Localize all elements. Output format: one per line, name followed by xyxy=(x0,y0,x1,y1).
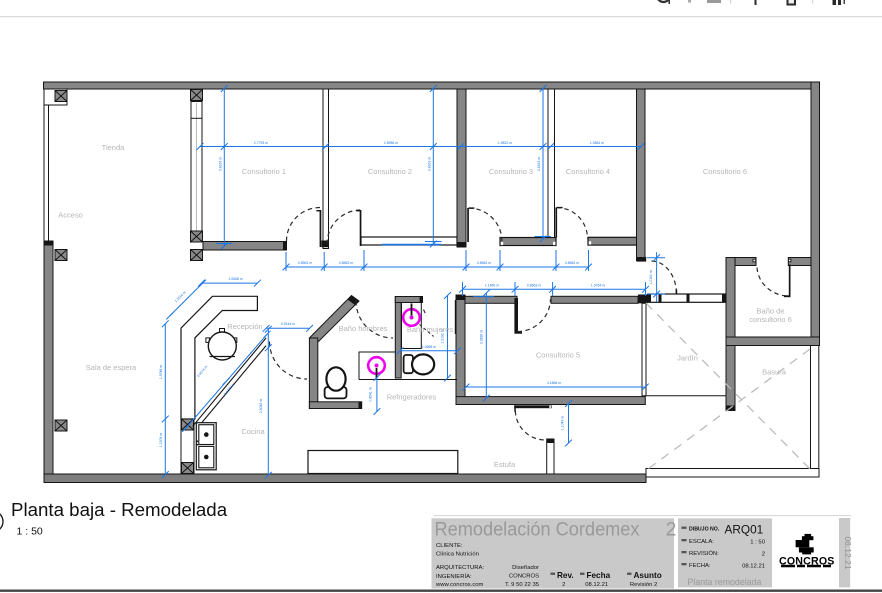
svg-text:2.8956 m: 2.8956 m xyxy=(384,141,398,145)
svg-text:Planta remodelada: Planta remodelada xyxy=(688,577,762,587)
svg-text:Baño hombres: Baño hombres xyxy=(339,324,388,333)
svg-text:1.0764 m: 1.0764 m xyxy=(591,283,605,287)
svg-text:Consultorio 2: Consultorio 2 xyxy=(368,167,412,176)
svg-text:REVISIÓN:: REVISIÓN: xyxy=(689,550,719,557)
svg-text:2.4082 m: 2.4082 m xyxy=(259,399,263,413)
svg-text:1.9812 m: 1.9812 m xyxy=(498,141,512,145)
svg-text:1 : 50: 1 : 50 xyxy=(750,540,765,546)
svg-text:Revisión 2: Revisión 2 xyxy=(630,582,658,588)
svg-text:2.7793 m: 2.7793 m xyxy=(254,141,268,145)
svg-text:Consultorio 5: Consultorio 5 xyxy=(536,351,580,360)
svg-text:0.8541 m: 0.8541 m xyxy=(369,387,373,401)
svg-text:08.12.21: 08.12.21 xyxy=(742,564,765,570)
svg-text:CLIENTE:: CLIENTE: xyxy=(436,543,463,549)
svg-text:2.0574 m: 2.0574 m xyxy=(196,365,208,378)
svg-text:1 : 50: 1 : 50 xyxy=(17,526,43,538)
svg-text:Refrigeradores: Refrigeradores xyxy=(387,393,437,402)
svg-text:ESCALA:: ESCALA: xyxy=(689,539,714,545)
svg-text:4.1866 m: 4.1866 m xyxy=(547,381,561,385)
svg-text:1.1049 m: 1.1049 m xyxy=(561,416,565,430)
svg-text:0.8563 m: 0.8563 m xyxy=(477,261,491,265)
svg-text:Cocina: Cocina xyxy=(241,427,265,436)
svg-text:3.3836 m: 3.3836 m xyxy=(480,330,484,344)
svg-text:Sala de espera: Sala de espera xyxy=(86,363,137,372)
svg-text:1.0584 m: 1.0584 m xyxy=(590,141,604,145)
svg-text:ARQUITECTURA:: ARQUITECTURA: xyxy=(436,565,484,571)
svg-text:0.8563 m: 0.8563 m xyxy=(339,261,353,265)
svg-text:Consultorio 4: Consultorio 4 xyxy=(566,167,610,176)
svg-text:Clínica Nutrición: Clínica Nutrición xyxy=(436,551,479,557)
svg-text:Planta baja - Remodelada: Planta baja - Remodelada xyxy=(11,499,228,520)
svg-text:Diseñador: Diseñador xyxy=(512,565,539,571)
svg-text:DIBUJO NO.: DIBUJO NO. xyxy=(689,527,720,533)
svg-text:1.0160 m: 1.0160 m xyxy=(649,270,653,284)
svg-text:Fecha: Fecha xyxy=(587,571,611,580)
svg-text:3.8163 m: 3.8163 m xyxy=(219,157,223,171)
svg-text:INGENIERÍA:: INGENIERÍA: xyxy=(436,573,472,580)
svg-text:0.9144 m: 0.9144 m xyxy=(281,322,295,326)
svg-text:08.12.21: 08.12.21 xyxy=(585,582,608,588)
svg-text:Jardín: Jardín xyxy=(677,354,698,363)
svg-text:FECHA:: FECHA: xyxy=(689,563,711,569)
svg-text:1.9748 m: 1.9748 m xyxy=(159,365,163,379)
svg-text:1.1509 m: 1.1509 m xyxy=(159,433,163,447)
svg-text:Recepción: Recepción xyxy=(227,322,262,331)
svg-text:2.1336 m: 2.1336 m xyxy=(223,383,235,396)
svg-text:www.concros.com: www.concros.com xyxy=(435,582,484,588)
svg-text:Consultorio 1: Consultorio 1 xyxy=(242,167,286,176)
svg-text:Consultorio 3: Consultorio 3 xyxy=(489,167,533,176)
svg-text:2: 2 xyxy=(562,582,565,588)
svg-text:Baño mujeres: Baño mujeres xyxy=(407,325,454,334)
svg-text:3.8163 m: 3.8163 m xyxy=(428,157,432,171)
svg-text:T. 9 50 22 35: T. 9 50 22 35 xyxy=(505,582,540,588)
svg-text:08.12.21: 08.12.21 xyxy=(843,536,853,569)
svg-text:Basura: Basura xyxy=(762,368,787,377)
svg-text:Consultorio 6: Consultorio 6 xyxy=(703,167,747,176)
svg-text:1.1450 m: 1.1450 m xyxy=(485,283,499,287)
svg-text:Remodelación Cordemex: Remodelación Cordemex xyxy=(435,519,640,540)
svg-text:ARQ01: ARQ01 xyxy=(725,523,764,537)
svg-text:Estufa: Estufa xyxy=(494,460,516,469)
svg-text:2: 2 xyxy=(666,519,677,540)
svg-text:Tienda: Tienda xyxy=(102,143,125,152)
svg-text:0.8563 m: 0.8563 m xyxy=(527,283,541,287)
svg-text:consultorio 6: consultorio 6 xyxy=(749,315,792,324)
svg-text:Acceso: Acceso xyxy=(58,211,83,220)
svg-text:Asunto: Asunto xyxy=(634,571,662,580)
svg-text:3.8163 m: 3.8163 m xyxy=(537,157,541,171)
svg-text:1.0668 m: 1.0668 m xyxy=(228,277,242,281)
svg-text:2: 2 xyxy=(762,552,765,558)
svg-text:CONCROS: CONCROS xyxy=(509,574,539,580)
svg-text:0.8563 m: 0.8563 m xyxy=(565,261,579,265)
svg-text:Rev.: Rev. xyxy=(557,571,574,580)
svg-text:1.0668 m: 1.0668 m xyxy=(422,345,436,349)
svg-text:0.8563 m: 0.8563 m xyxy=(298,261,312,265)
